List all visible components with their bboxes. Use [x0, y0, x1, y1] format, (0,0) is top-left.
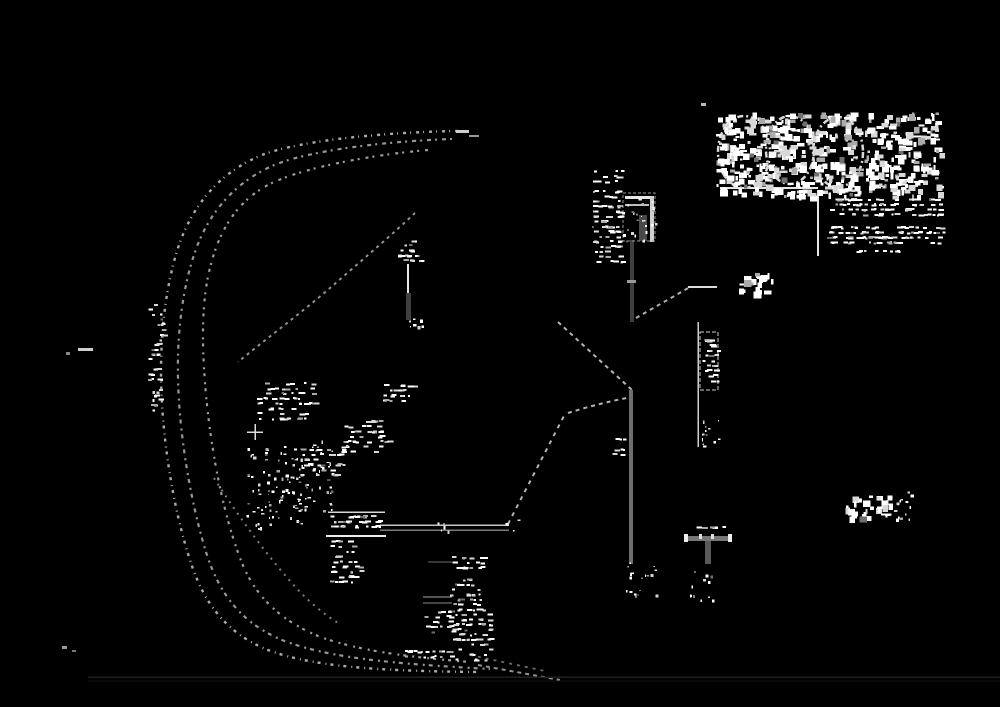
- pole-text-column-speck: [606, 216, 610, 218]
- address-text-row-2-speck: [861, 232, 864, 234]
- address-text-row-1-speck: [865, 204, 869, 206]
- bottom-stack-row-3-speck: [441, 611, 446, 613]
- monument-box-speckle-speck: [637, 220, 640, 222]
- mid-annotation-1-speck: [280, 403, 283, 405]
- logo-glyph-noise-2-speck: [935, 121, 942, 125]
- bearing-label-28-speck: [747, 282, 754, 285]
- mid-annotation-2-speck: [384, 399, 389, 401]
- logo-glyph-noise-1-speck: [851, 159, 854, 162]
- logo-glyph-noise-1-speck: [736, 136, 740, 138]
- address-text-row-1-speck: [853, 204, 855, 206]
- mid-annotation-1-speck: [271, 388, 276, 390]
- brush-blob-left-speck: [265, 459, 268, 461]
- brush-blob-left-speck: [293, 505, 295, 508]
- address-text-row-2-speck: [894, 242, 897, 244]
- scale-scribble-speck: [905, 514, 906, 516]
- brush-blob-right-speck: [305, 506, 308, 508]
- address-text-row-2-speck: [829, 231, 833, 233]
- survey-chain-diagonal: [508, 412, 566, 524]
- mid-annotation-1-speck: [311, 388, 315, 390]
- brush-blob-left-speck: [267, 482, 270, 485]
- road-edge-outer: [161, 131, 478, 672]
- address-text-row-2-speck: [909, 226, 914, 228]
- pole-text-column-speck: [601, 221, 607, 223]
- logo-glyph-noise-1-speck: [855, 194, 861, 197]
- mid-annotation-4-speck: [317, 449, 323, 451]
- mid-annotation-3-speck: [350, 436, 354, 438]
- left-edge-column-speck: [158, 324, 160, 326]
- pole-text-column-speck: [615, 180, 618, 182]
- pin-foot-noise-speck: [410, 326, 411, 327]
- address-text-row-1-speck: [912, 198, 917, 200]
- address-text-row-2-speck: [872, 228, 876, 230]
- ladder-rung-text-speck: [712, 381, 717, 383]
- brush-blob-left-speck: [269, 517, 270, 519]
- logo-glyph-noise-1-speck: [796, 183, 800, 187]
- logo-glyph-noise-1-speck: [757, 146, 763, 149]
- address-text-row-2-speck: [850, 232, 853, 234]
- left-bracket-mark-speck: [157, 392, 160, 395]
- bottom-stack-row-1-speck: [467, 562, 469, 564]
- logo-glyph-noise-2-speck: [931, 134, 936, 137]
- mid-annotation-1-speck: [269, 393, 271, 395]
- logo-glyph-noise-1-speck: [762, 134, 767, 137]
- mid-annotation-1-speck: [290, 383, 295, 385]
- logo-glyph-noise-1-speck: [835, 162, 840, 169]
- address-text-row-2-speck: [863, 236, 867, 238]
- pole-text-column-speck: [593, 201, 596, 203]
- scale-scribble-speck: [905, 501, 908, 503]
- logo-glyph-noise-1-speck: [747, 168, 752, 171]
- address-text-row-1-speck: [912, 214, 917, 216]
- left-edge-column-speck: [148, 308, 153, 310]
- logo-glyph-noise-1-speck: [844, 195, 847, 198]
- logo-glyph-noise-2-speck: [879, 139, 884, 144]
- brush-blob-right-speck: [313, 500, 316, 501]
- logo-glyph-noise-1-speck: [744, 127, 749, 130]
- scanned-survey-plat: [0, 0, 1000, 707]
- plat-drawing-canvas: [0, 0, 1000, 707]
- bottom-stack-row-3: [425, 610, 457, 633]
- ladder-foot-bracket-speck: [702, 433, 704, 435]
- logo-glyph-noise-1-speck: [740, 164, 744, 168]
- mid-annotation-1-speck: [257, 412, 262, 414]
- logo-glyph-noise-1-speck: [818, 164, 824, 166]
- bottom-stack-row-4-speck: [458, 609, 461, 611]
- mid-annotation-3-speck: [388, 441, 392, 443]
- pole-text-column-speck: [593, 205, 599, 207]
- logo-glyph-noise-1-speck: [798, 113, 803, 118]
- pole-text-column-speck: [595, 210, 599, 212]
- brush-blob-left-speck: [269, 501, 271, 503]
- pole-text-column-speck: [594, 190, 599, 192]
- brush-blob-left-speck: [253, 457, 256, 460]
- logo-glyph-noise-3-speck: [875, 165, 879, 171]
- mid-annotation-1-speck: [260, 402, 263, 404]
- scale-char-2-speck: [863, 512, 865, 514]
- ladder-rung-text-speck: [717, 350, 721, 352]
- scale-char-2: [859, 496, 875, 523]
- pole-text-column-speck: [594, 221, 598, 223]
- logo-glyph-noise-1-speck: [782, 120, 784, 123]
- mid-annotation-3-speck: [348, 440, 351, 442]
- logo-glyph-noise-1-speck: [760, 166, 763, 172]
- brush-blob-right-speck: [327, 462, 330, 463]
- t-monument-tick-1: [699, 534, 702, 539]
- leader-arrow-blob-speck: [438, 523, 440, 525]
- ladder-rung-text-speck: [705, 354, 708, 356]
- stone-label-column-speck: [332, 571, 337, 573]
- bottom-stack-row-3-speck: [426, 626, 431, 628]
- brush-blob-right-speck: [282, 491, 285, 493]
- brush-blob-left-speck: [281, 478, 283, 481]
- address-text-row-2: [827, 226, 946, 244]
- mid-annotation-3-speck: [349, 426, 354, 428]
- logo-glyph-noise-1-speck: [744, 175, 747, 178]
- logo-glyph-noise-1-speck: [740, 159, 743, 161]
- brush-blob-right-speck: [285, 462, 287, 465]
- logo-glyph-noise-1-speck: [843, 147, 851, 150]
- logo-glyph-noise-1-speck: [729, 115, 736, 121]
- pin-top-noise-speck: [409, 249, 415, 251]
- monument-box-speckle-speck: [643, 241, 644, 243]
- pin-top-noise-speck: [407, 256, 412, 258]
- brush-blob-right-speck: [298, 501, 300, 502]
- brush-blob-left-speck: [258, 528, 261, 530]
- monument-box-speckle-speck: [622, 212, 625, 215]
- address-text-row-2-speck: [917, 237, 920, 239]
- address-text-row-2-speck: [866, 227, 869, 229]
- address-text-row-1-speck: [880, 203, 884, 205]
- brush-blob-right-speck: [331, 509, 333, 511]
- bottom-stack-row-2-speck: [471, 585, 474, 587]
- left-bracket-mark-speck: [153, 399, 155, 402]
- mid-annotation-3-speck: [357, 430, 362, 432]
- monument-box-speckle-speck: [631, 232, 634, 235]
- brush-blob-right-speck: [299, 481, 302, 483]
- pin-foot-noise-speck: [413, 324, 416, 327]
- left-edge-column-speck: [160, 324, 163, 326]
- logo-glyph-noise-3-speck: [871, 158, 876, 164]
- logo-glyph-noise-1-speck: [803, 122, 807, 127]
- scale-char-2-speck: [870, 506, 874, 510]
- logo-glyph-noise-1-speck: [717, 169, 725, 173]
- address-text-row-1-speck: [881, 208, 885, 210]
- property-line-side-text-speck: [620, 454, 625, 456]
- bottom-stack-row-3-speck: [449, 620, 454, 622]
- logo-glyph-noise-1-speck: [718, 117, 723, 122]
- logo-glyph-noise-1-speck: [749, 175, 752, 178]
- address-text-row-1-speck: [920, 204, 924, 206]
- address-text-row-1-speck: [843, 204, 847, 206]
- left-edge-column-speck: [162, 334, 168, 336]
- logo-glyph-noise-2-speck: [936, 113, 939, 115]
- mid-annotation-4-speck: [304, 459, 310, 461]
- logo-glyph-noise-3-speck: [939, 153, 945, 159]
- bearing-label-28: [739, 273, 774, 299]
- pole-text-column-speck: [605, 250, 611, 252]
- address-text-row-1-speck: [939, 204, 943, 206]
- stone-label-text-speck: [331, 516, 335, 518]
- address-text-row-2-speck: [892, 237, 898, 239]
- logo-glyph-noise-3-speck: [897, 191, 901, 196]
- bottom-stack-row-4-speck: [487, 613, 493, 615]
- stone-label-column-speck: [338, 546, 342, 548]
- pole-text-column-speck: [593, 211, 595, 213]
- property-line-foot-scatter-speck: [637, 594, 638, 595]
- address-text-row-2-speck: [937, 242, 941, 244]
- left-edge-column-speck: [161, 318, 163, 320]
- logo-glyph-noise-1-speck: [791, 191, 795, 194]
- t-monument-cap-left: [684, 534, 688, 542]
- ladder-rung-text-speck: [715, 354, 720, 356]
- mid-annotation-1-speck: [315, 402, 320, 404]
- address-text-row-1-speck: [848, 199, 851, 201]
- logo-glyph-noise-1-speck: [826, 132, 828, 138]
- survey-chain-horizontal: [568, 397, 632, 413]
- logo-glyph-noise-1-speck: [792, 168, 797, 175]
- logo-glyph-noise-2-speck: [868, 113, 874, 119]
- mid-annotation-4-speck: [320, 453, 324, 455]
- logo-glyph-noise-1-speck: [814, 172, 819, 176]
- address-text-row-2-speck: [856, 237, 860, 239]
- logo-glyph-noise-2-speck: [903, 116, 908, 119]
- property-line-foot-scatter-speck: [630, 576, 633, 579]
- bearing-label-28-speck: [764, 291, 772, 295]
- brush-blob-right-speck: [300, 493, 302, 496]
- brush-blob-right-speck: [308, 497, 311, 499]
- logo-glyph-noise-2-speck: [914, 136, 921, 138]
- logo-glyph-noise-3-speck: [867, 156, 869, 161]
- logo-glyph-noise-1-speck: [836, 169, 838, 175]
- brush-blob-left-speck: [248, 503, 250, 504]
- bottom-stack-row-1-speck: [464, 567, 469, 569]
- monument-box-speckle-speck: [641, 203, 644, 204]
- property-line-side-text-speck: [616, 438, 620, 440]
- bottom-stack-row-4-speck: [461, 619, 467, 621]
- logo-glyph-noise-3-speck: [882, 185, 885, 188]
- logo-glyph-noise-3-speck: [869, 186, 875, 191]
- left-edge-column-speck: [152, 314, 155, 316]
- pin-foot-noise: [409, 319, 424, 330]
- address-text-row-1-speck: [850, 209, 853, 211]
- logo-glyph-noise-1-speck: [841, 172, 845, 176]
- logo-glyph-noise-2: [865, 113, 942, 158]
- mid-annotation-1-speck: [295, 388, 298, 390]
- logo-glyph-noise-1-speck: [830, 125, 833, 128]
- scale-char-3-speck: [889, 504, 893, 510]
- scale-underline-speck: [886, 514, 890, 516]
- logo-glyph-noise-2-speck: [895, 137, 901, 140]
- property-line-foot-scatter: [626, 562, 659, 597]
- property-line-foot-scatter-speck: [630, 591, 633, 593]
- logo-glyph-noise-1-speck: [818, 190, 823, 196]
- pin-top-noise-speck: [411, 240, 415, 242]
- logo-glyph-noise-1-speck: [803, 190, 808, 194]
- stone-label-text-speck: [356, 525, 358, 527]
- filled-marks-group: [62, 103, 732, 652]
- bottom-stack-row-4-speck: [481, 623, 486, 625]
- mid-annotation-4-speck: [321, 470, 326, 472]
- address-text-row-1-speck: [879, 199, 884, 201]
- pole-text-column-speck: [614, 175, 618, 177]
- bearing-label-28-speck: [768, 273, 770, 279]
- mid-annotation-1-speck: [280, 413, 285, 415]
- logo-glyph-noise-3-speck: [893, 196, 899, 200]
- mid-annotation-1-speck: [299, 403, 302, 405]
- curve-start-tick-2: [469, 135, 479, 137]
- mid-annotation-2-speck: [408, 395, 410, 397]
- stone-label-column-speck: [349, 561, 353, 563]
- brush-blob-right-speck: [284, 446, 286, 448]
- bottom-stack-row-3-speck: [447, 626, 451, 628]
- bottom-stack-row-4-speck: [482, 634, 488, 636]
- bottom-dash-row-speck: [440, 656, 443, 658]
- logo-glyph-noise-1-speck: [840, 157, 845, 164]
- brush-blob-left-speck: [258, 523, 260, 526]
- bottom-stack-row-2-speck: [452, 589, 455, 591]
- property-line-side-text-speck: [620, 449, 623, 451]
- stone-label-text-speck: [334, 521, 337, 523]
- bottom-dash-row-speck: [409, 650, 414, 652]
- pole-text-column-speck: [597, 201, 599, 203]
- bottom-stack-row-2-speck: [473, 599, 475, 601]
- brush-blob-right-speck: [299, 477, 301, 478]
- bottom-stack-row-2-speck: [472, 594, 476, 596]
- address-text-row-1-speck: [863, 214, 868, 216]
- logo-glyph-noise-1-speck: [792, 129, 799, 131]
- scale-underline-speck: [881, 514, 886, 516]
- address-text-row-1-speck: [938, 214, 944, 216]
- mid-annotation-4-speck: [318, 464, 322, 466]
- logo-glyph-noise-1-speck: [768, 179, 772, 181]
- logo-glyph-noise-1-speck: [770, 116, 774, 120]
- pin-foot-noise-speck: [421, 326, 424, 328]
- brush-blob-left-speck: [269, 490, 270, 492]
- logo-glyph-noise-3-speck: [915, 157, 919, 159]
- address-text-row-1-speck: [885, 209, 890, 211]
- address-text-row-2-speck: [906, 237, 909, 239]
- t-monument-top-dashes-speck: [710, 527, 715, 529]
- pole-text-column-speck: [605, 182, 610, 184]
- mid-annotation-1-speck: [265, 383, 270, 385]
- stone-label-text: [331, 515, 383, 528]
- bottom-stack-row-3-speck: [435, 626, 439, 628]
- brush-blob-left-speck: [261, 509, 263, 511]
- logo-glyph-noise-1-speck: [804, 128, 812, 133]
- logo-glyph-noise-3-speck: [921, 167, 929, 172]
- logo-glyph-noise-3-speck: [922, 174, 928, 177]
- bottom-dash-row-speck: [414, 650, 418, 652]
- road-edge-inner: [203, 150, 470, 662]
- brush-blob-left-speck: [299, 510, 302, 512]
- bottom-stack-row-1-speck: [476, 562, 480, 564]
- logo-glyph-noise-1-speck: [817, 158, 825, 163]
- bottom-stack-row-4-speck: [467, 609, 472, 611]
- brush-blob-left-speck: [251, 454, 254, 456]
- property-line-foot-scatter-speck: [628, 566, 629, 568]
- t-monument-foot-scatter-speck: [690, 595, 692, 597]
- address-text-row-1-speck: [927, 209, 932, 211]
- mid-annotation-1-speck: [281, 392, 284, 394]
- mid-annotation-1-speck: [287, 418, 289, 420]
- pole-text-column-speck: [616, 226, 620, 228]
- logo-glyph-noise-1-speck: [729, 130, 737, 135]
- logo-glyph-noise-2-speck: [931, 126, 939, 131]
- scale-char-3-speck: [878, 509, 880, 513]
- stone-label-text-speck: [365, 521, 371, 523]
- left-edge-column-speck: [148, 379, 152, 381]
- logo-glyph-noise-2-speck: [899, 148, 907, 151]
- stone-label-text-speck: [371, 515, 377, 517]
- logo-glyph-noise-1-speck: [774, 167, 780, 173]
- logo-glyph-noise-1-speck: [720, 188, 727, 191]
- stone-label-column-speck: [331, 545, 335, 547]
- logo-glyph-noise-3-speck: [884, 179, 888, 182]
- brush-blob-left-speck: [251, 455, 252, 458]
- t-monument-foot-scatter-speck: [711, 575, 713, 578]
- logo-glyph-noise-1-speck: [755, 187, 759, 192]
- logo-glyph-noise-2-speck: [899, 145, 906, 147]
- logo-glyph-noise-1-speck: [780, 170, 787, 173]
- address-text-row-2-speck: [931, 242, 935, 244]
- mid-annotation-3-speck: [344, 441, 347, 443]
- logo-glyph-noise-2-speck: [872, 139, 876, 143]
- bottom-stack-row-4-speck: [453, 629, 459, 631]
- mid-annotation-1-speck: [286, 388, 291, 390]
- bearing-label-28-speck: [756, 290, 762, 295]
- brush-blob-left-speck: [296, 478, 298, 480]
- pole-text-column-speck: [616, 170, 618, 172]
- logo-glyph-noise-3-speck: [918, 180, 923, 183]
- bottom-stack-row-2: [450, 578, 482, 606]
- mid-annotation-1-speck: [305, 413, 309, 415]
- logo-glyph-noise-1-speck: [852, 120, 854, 124]
- bottom-stack-row-2-speck: [473, 603, 477, 605]
- bottom-stack-row-4-speck: [474, 633, 476, 635]
- mid-annotation-4-speck: [311, 454, 315, 456]
- t-monument-top-dashes: [696, 526, 726, 529]
- property-line-side-text: [613, 438, 627, 456]
- address-text-row-1-speck: [875, 214, 878, 216]
- mid-annotation-3-speck: [379, 420, 384, 422]
- logo-glyph-noise-1-speck: [743, 154, 750, 161]
- bottom-dash-row-speck: [448, 651, 453, 653]
- bottom-stack-row-4: [453, 608, 495, 661]
- address-text-row-2-speck: [901, 237, 905, 239]
- pole-text-column-speck: [595, 231, 599, 233]
- pole-text-column-speck: [612, 196, 618, 198]
- logo-glyph-noise-2-speck: [882, 123, 889, 128]
- bottom-stack-row-4-speck: [484, 654, 487, 656]
- mid-annotation-1-speck: [304, 418, 307, 420]
- logo-glyph-noise-1-speck: [851, 189, 855, 192]
- bottom-stack-row-3-speck: [433, 621, 435, 623]
- logo-glyph-noise-1-speck: [734, 154, 738, 161]
- mid-annotation-2-speck: [402, 390, 404, 392]
- brush-blob-left-speck: [246, 515, 249, 518]
- logo-glyph-noise-1-speck: [846, 129, 852, 134]
- address-text-row-2-speck: [874, 237, 879, 239]
- bottom-stack-row-4-speck: [488, 619, 493, 621]
- mid-annotation-3-speck: [342, 451, 348, 453]
- property-line-foot-scatter-speck: [653, 566, 655, 567]
- logo-glyph-noise-1-speck: [821, 182, 824, 185]
- logo-glyph-noise-1-speck: [851, 176, 859, 183]
- mid-annotation-2-speck: [391, 395, 395, 397]
- address-text-row-1-speck: [856, 208, 859, 210]
- pin-foot-noise-speck: [413, 319, 416, 321]
